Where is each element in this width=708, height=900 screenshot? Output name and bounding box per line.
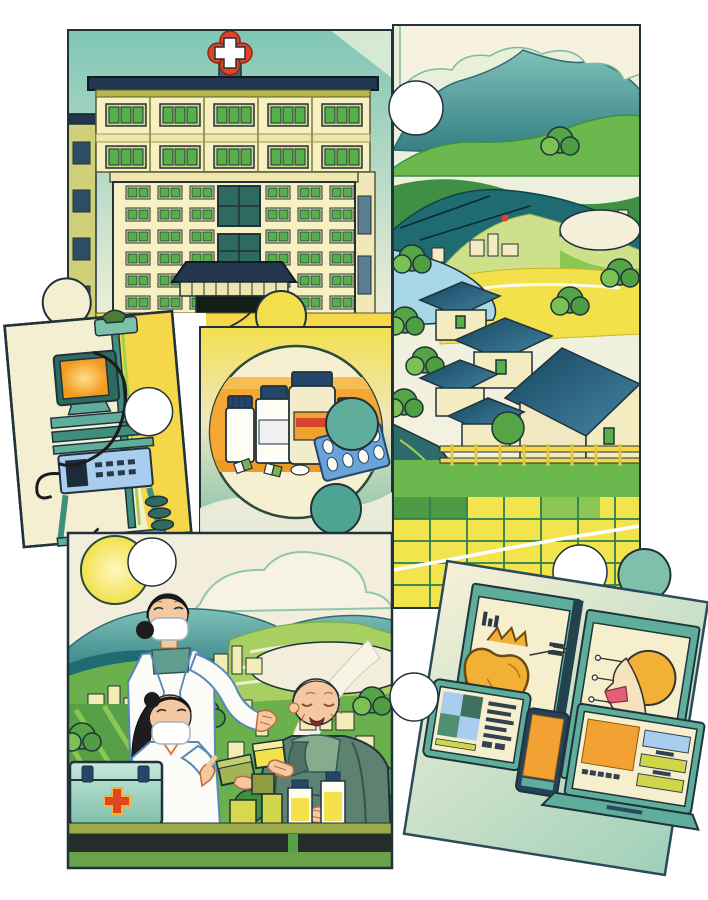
piece-medicines xyxy=(200,291,392,537)
puzzle-notch xyxy=(390,673,438,721)
face-mask xyxy=(152,722,190,744)
illustration-stage: Rural healthcare jigsaw puzzle illustrat… xyxy=(0,0,708,900)
illustration-canvas: Rural healthcare jigsaw puzzle illustrat… xyxy=(0,0,708,900)
cart-monitor-screen xyxy=(60,357,109,399)
face-mask xyxy=(150,618,188,640)
pagoda-dot xyxy=(502,215,509,222)
first-aid-kit xyxy=(70,762,162,824)
puzzle-knob xyxy=(311,484,361,534)
puzzle-knob xyxy=(326,398,378,450)
puzzle-notch xyxy=(389,81,443,135)
piece-doctors xyxy=(63,533,410,868)
piece-countryside xyxy=(385,22,644,608)
tablet-device xyxy=(422,679,531,771)
puzzle-notch xyxy=(128,538,176,586)
piece-hospital xyxy=(64,30,392,334)
